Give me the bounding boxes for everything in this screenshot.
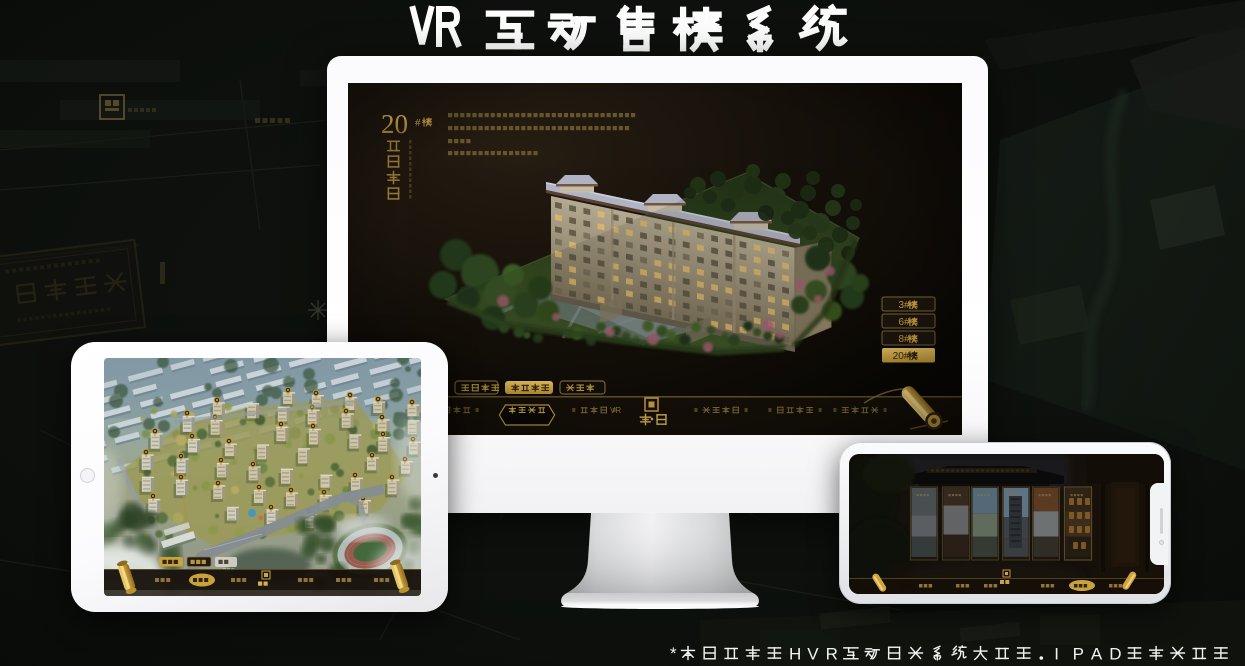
svg-text:*: * (670, 644, 677, 663)
svg-text:V: V (807, 645, 819, 664)
svg-text:A: A (1091, 645, 1103, 664)
svg-text:I: I (1054, 645, 1059, 664)
svg-text:P: P (1073, 645, 1084, 664)
svg-text:D: D (1109, 645, 1121, 664)
svg-text:H: H (789, 645, 801, 664)
svg-text:R: R (826, 645, 838, 664)
